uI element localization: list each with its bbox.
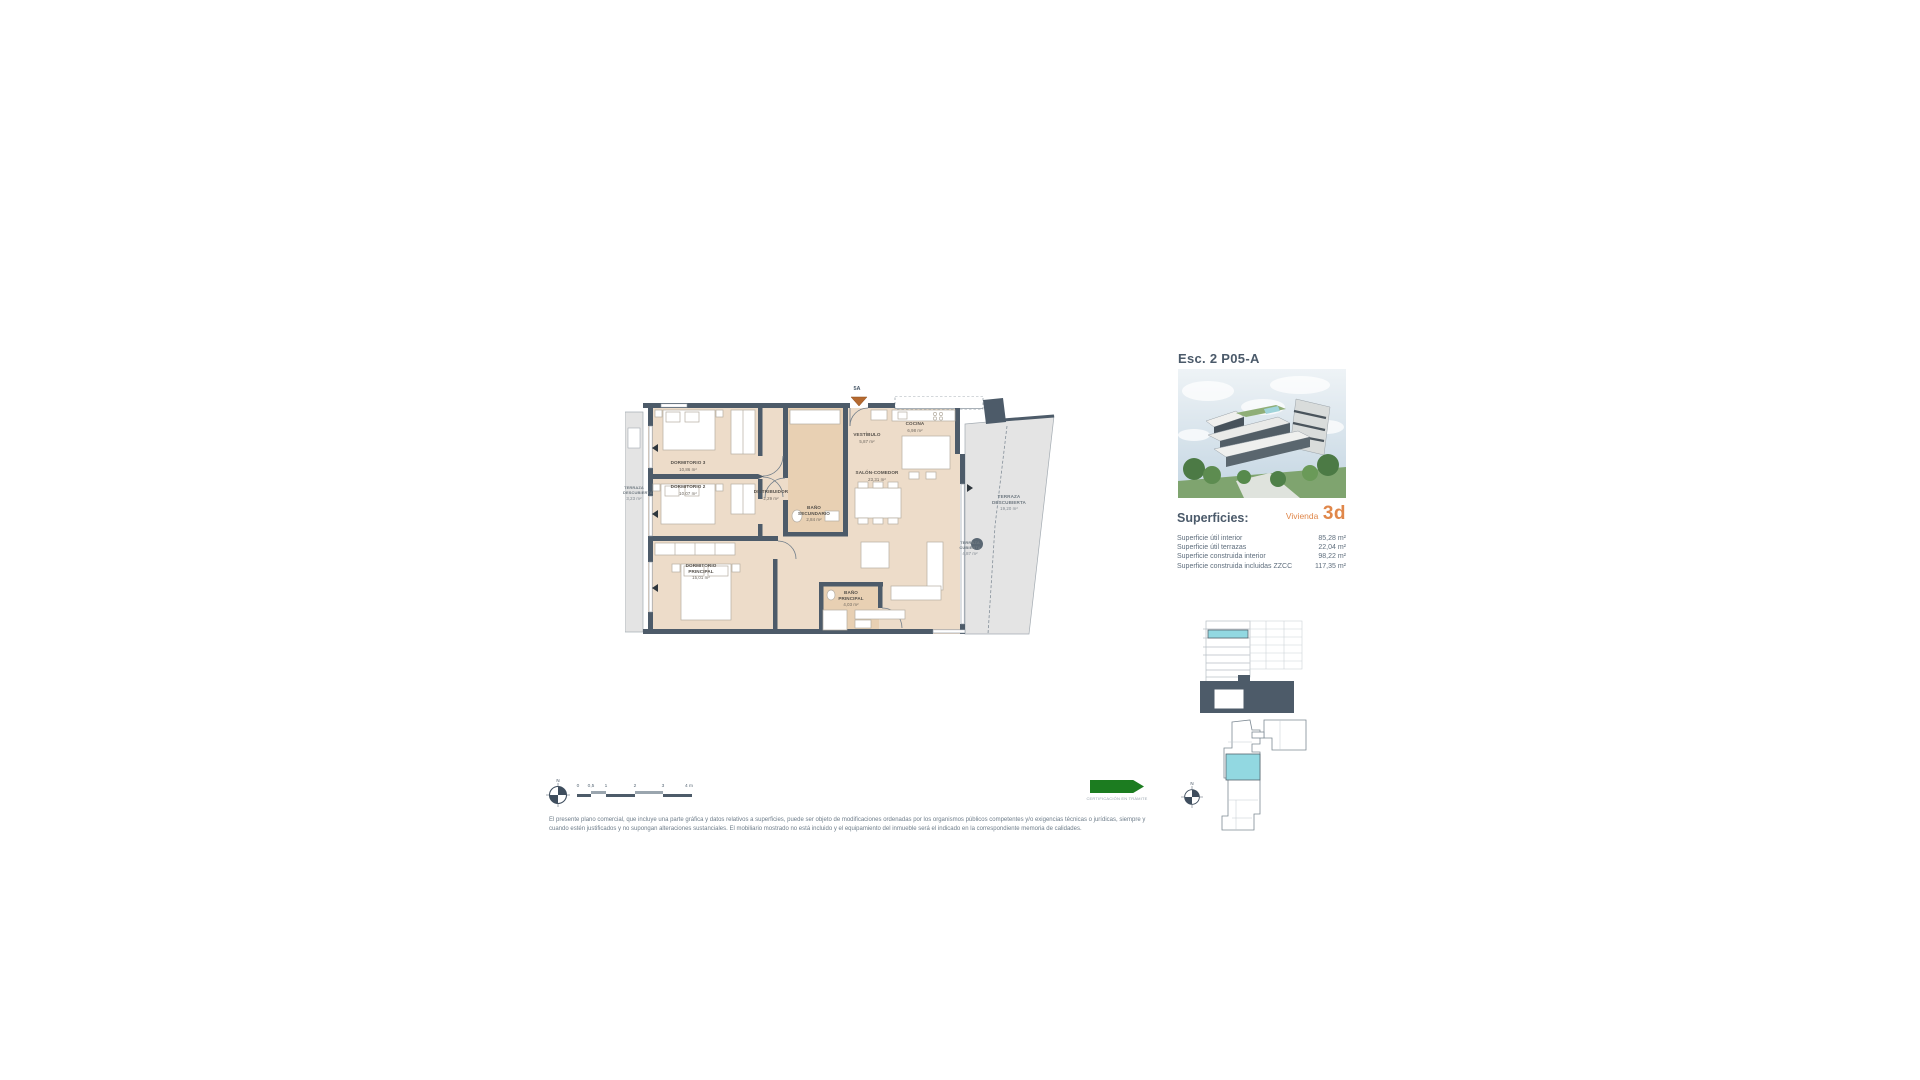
room-label-bano-principal: BAÑO PRINCIPAL4,03 m² [836,590,866,608]
superficies-row: Superficie útil terrazas22,04 m² [1177,543,1346,552]
north-compass-icon: N [546,778,570,812]
room-label-cocina: COCINA6,98 m² [895,421,935,433]
certification-label: CERTIFICACIÓN EN TRÁMITE [1082,796,1152,801]
plan-sheet: DORMITORIO 310,86 m² DORMITORIO 210,07 m… [0,0,1920,1080]
room-label-dormitorio3: DORMITORIO 310,86 m² [657,460,719,472]
vivienda-badge: Vivienda 3d [1286,503,1346,525]
certification-arrow-icon [1090,780,1144,793]
highlighted-floor [1208,630,1248,638]
entrance-door-number: 5A [846,386,868,392]
room-label-terraza-cubierta: TERRAZA CUBIERTA4,87 m² [955,540,985,556]
terrace-right [965,416,1054,634]
entrance-marker-icon [851,397,867,406]
plan-reference-title: Esc. 2 P05-A [1178,351,1260,366]
floorplan: DORMITORIO 310,86 m² DORMITORIO 210,07 m… [625,396,1055,646]
room-label-bano-secundario: BAÑO SECUNDARIO2,84 m² [797,505,831,523]
north-compass-icon: N [1180,781,1204,813]
room-label-distribuidor: DISTRIBUIDOR2,29 m² [750,489,792,501]
room-label-salon-comedor: SALÓN-COMEDOR23,31 m² [849,470,905,482]
superficies-title: Superficies: [1177,511,1249,525]
floorplan-drawing [625,396,1055,646]
superficies-row: Superficie construida interior98,22 m² [1177,552,1346,561]
building-render-image [1178,369,1346,498]
legal-disclaimer: El presente plano comercial, que incluye… [549,816,1159,833]
room-label-terraza-dcha: TERRAZA DESCUBIERTA19,20 m² [992,494,1026,512]
superficies-row: Superficie construida incluidas ZZCC117,… [1177,562,1346,571]
room-label-dormitorio2: DORMITORIO 210,07 m² [657,484,719,496]
superficies-table: Superficie útil interior85,28 m² Superfi… [1177,534,1346,571]
room-label-terraza-izq: TERRAZA DESCUBIERTA3,23 m² [623,485,645,501]
room-label-vestibulo: VESTÍBULO5,87 m² [847,432,887,444]
room-label-dormitorio-principal: DORMITORIO PRINCIPAL15,01 m² [679,563,723,581]
building-section-key [1198,617,1310,722]
dashed-overhang [895,396,983,409]
superficies-panel: Superficies: Vivienda 3d Superficie útil… [1177,503,1346,571]
superficies-row: Superficie útil interior85,28 m² [1177,534,1346,543]
highlighted-unit [1226,754,1260,780]
scale-bar: 0 0,5 1 2 3 4 m [577,784,697,804]
floor-key-plan [1202,718,1312,841]
